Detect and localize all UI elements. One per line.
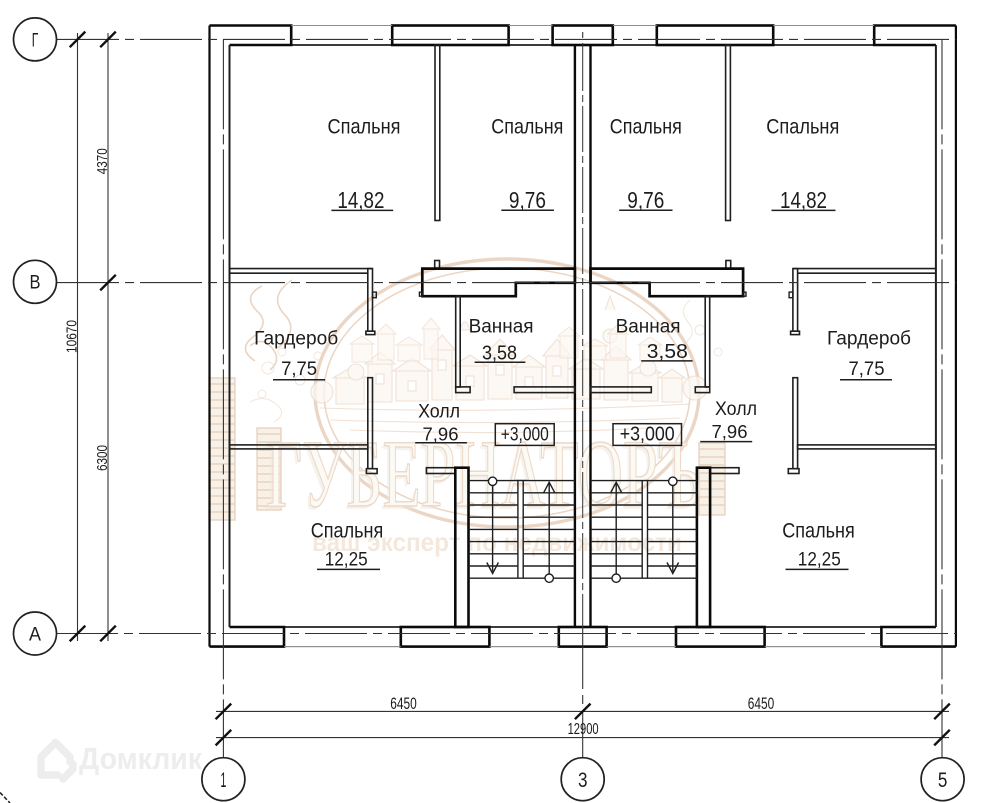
svg-text:3,58: 3,58: [647, 340, 688, 363]
svg-text:7,96: 7,96: [712, 421, 748, 442]
svg-text:14,82: 14,82: [780, 187, 827, 213]
svg-text:Спальня: Спальня: [766, 114, 839, 138]
svg-text:1: 1: [220, 768, 226, 792]
svg-text:Спальня: Спальня: [782, 519, 855, 543]
svg-text:6300: 6300: [94, 445, 111, 471]
svg-text:7,96: 7,96: [423, 424, 459, 445]
svg-text:Домклик: Домклик: [79, 741, 202, 776]
svg-text:Гардероб: Гардероб: [827, 329, 911, 350]
svg-text:6450: 6450: [390, 694, 417, 713]
svg-text:Холл: Холл: [715, 399, 757, 420]
svg-text:Ванная: Ванная: [469, 317, 534, 338]
svg-text:7,75: 7,75: [849, 358, 885, 380]
svg-text:Гардероб: Гардероб: [254, 329, 338, 350]
svg-text:Спальня: Спальня: [491, 114, 563, 138]
svg-text:10670: 10670: [63, 320, 80, 353]
svg-text:12,25: 12,25: [798, 550, 841, 571]
svg-text:12,25: 12,25: [325, 550, 368, 571]
svg-text:Холл: Холл: [418, 401, 460, 422]
svg-text:Спальня: Спальня: [610, 114, 682, 138]
svg-text:+3,000: +3,000: [501, 424, 549, 445]
svg-text:В: В: [30, 273, 41, 294]
svg-text:9,76: 9,76: [509, 187, 546, 213]
svg-text:+3,000: +3,000: [620, 424, 675, 446]
svg-text:Ванная: Ванная: [616, 317, 681, 338]
svg-text:6450: 6450: [748, 694, 775, 713]
svg-text:Г: Г: [32, 30, 39, 51]
svg-text:5: 5: [938, 768, 948, 792]
svg-text:3: 3: [578, 768, 588, 792]
svg-text:14,82: 14,82: [337, 187, 384, 213]
svg-text:4370: 4370: [94, 148, 111, 174]
svg-text:Спальня: Спальня: [311, 519, 384, 543]
svg-text:12900: 12900: [568, 721, 599, 738]
svg-text:3,58: 3,58: [482, 342, 517, 365]
svg-text:7,75: 7,75: [281, 358, 317, 380]
svg-text:А: А: [29, 624, 41, 645]
svg-text:Спальня: Спальня: [328, 114, 401, 138]
svg-text:9,76: 9,76: [627, 187, 664, 213]
